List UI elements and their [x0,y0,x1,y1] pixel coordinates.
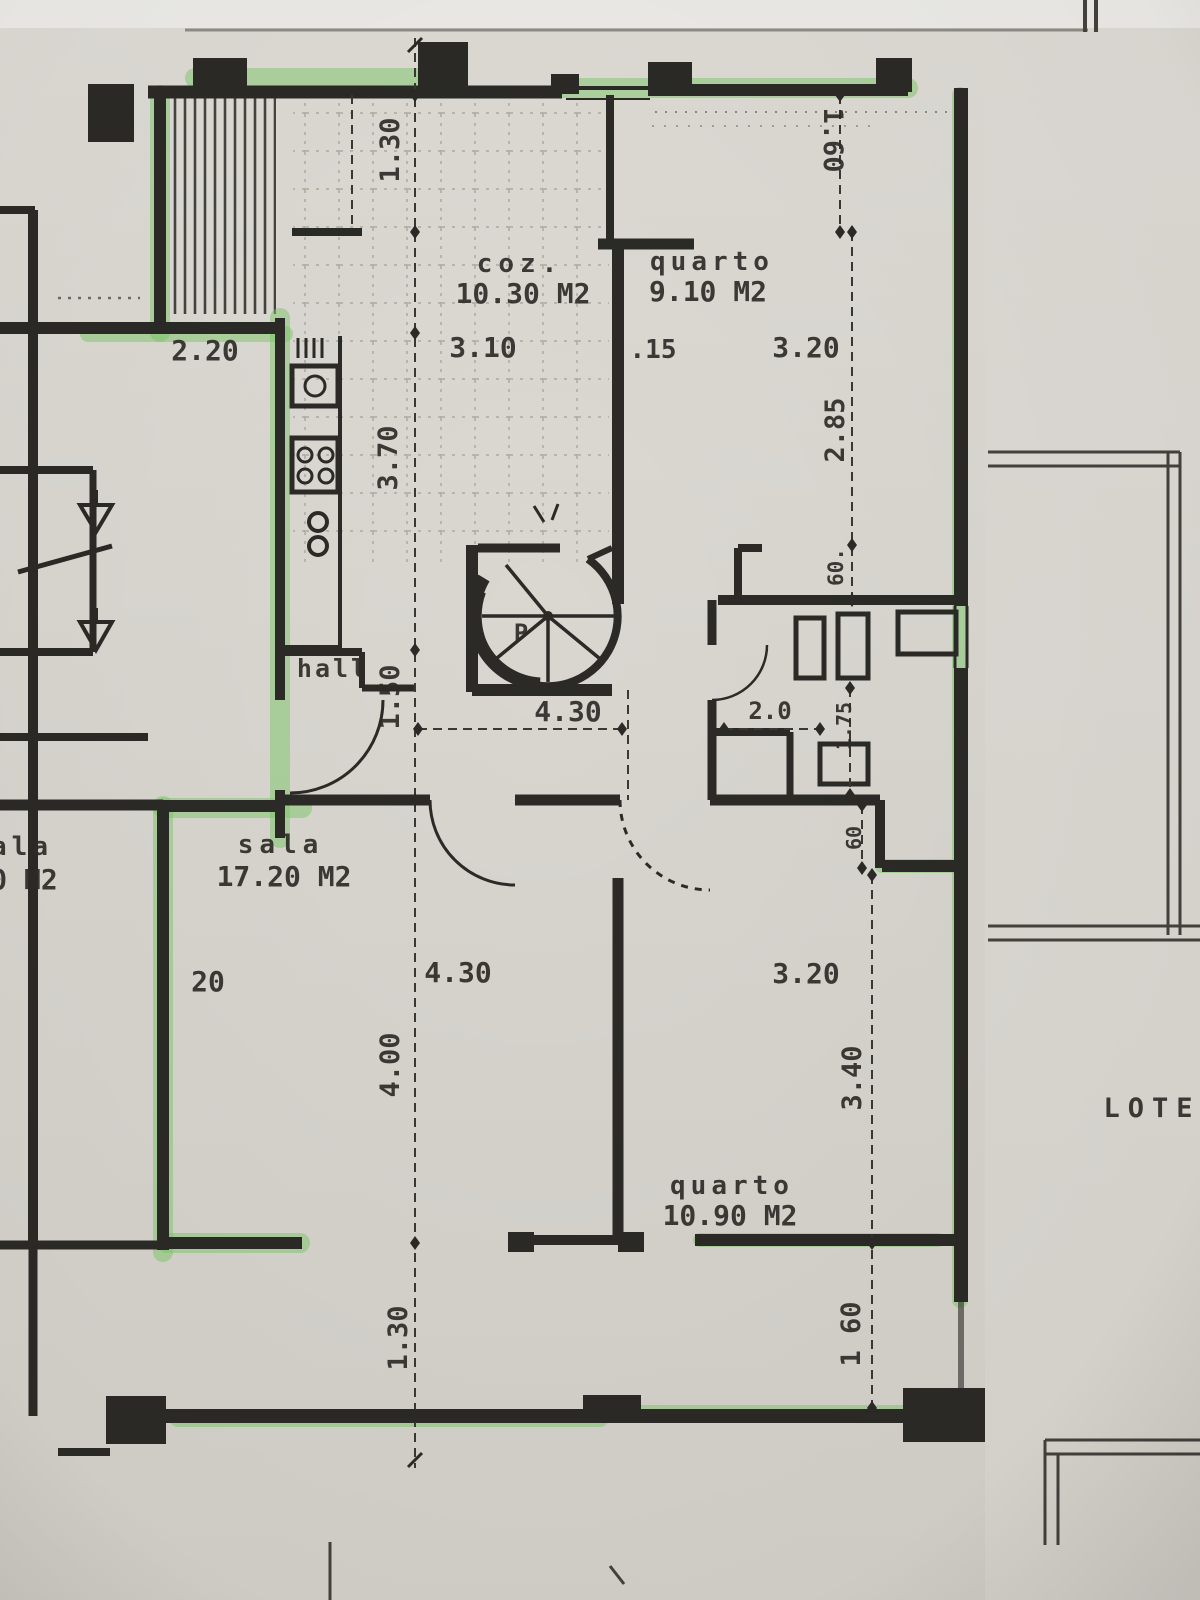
room-label-quarto-top: quarto [650,247,774,277]
lot-label: LOTE [1103,1093,1200,1124]
dim-wall-15: .15 [630,335,677,365]
dim-height-3-70: 3.70 [373,425,404,490]
dim-width-3-20-bottom: 3.20 [772,957,839,990]
room-area-quarto-top: 9.10 M2 [649,275,767,308]
room-label-hall: hall [297,654,369,683]
dim-height-4-00: 4.00 [375,1032,406,1097]
room-label-quarto-bottom: quarto [670,1171,794,1201]
dim-height-1-50: 1.50 [375,664,406,729]
room-label-cozinha: coz. [477,249,564,279]
stair-label-p: P [514,619,528,647]
room-area-sala: 17.20 M2 [217,860,352,893]
room-area-cozinha: 10.30 M2 [456,277,591,310]
room-area-sala-partial: 0 M2 [0,863,58,896]
dim-width-3-10: 3.10 [449,331,516,364]
room-label-sala: sala [238,830,325,860]
room-label-sala-partial: ala [0,832,53,862]
dim-height-1-30-bottom: 1.30 [383,1305,414,1370]
floorplan-photo: coz.10.30 M2quarto9.10 M2hallsala17.20 M… [0,0,1200,1600]
photo-vignette [0,0,1200,1600]
dim-height-3-40: 3.40 [837,1045,868,1110]
dim-width-2-20: 2.20 [171,334,238,367]
dim-width-3-20-top: 3.20 [772,331,839,364]
dim-height-1-60-bottom: 1 60 [836,1301,867,1366]
dim-height-1-60-top: 1.60 [817,107,848,172]
dim-height-1-75: 1.75 [832,702,856,750]
room-area-quarto-bottom: 10.90 M2 [663,1199,798,1232]
dim-width-20: 20 [191,965,225,998]
dim-width-2-0: 2.0 [748,697,791,725]
dim-width-4-30-mid: 4.30 [534,695,601,728]
dim-width-4-30-sala: 4.30 [424,956,491,989]
dim-height-2-85: 2.85 [820,397,851,462]
floorplan-drawing: coz.10.30 M2quarto9.10 M2hallsala17.20 M… [0,0,1200,1600]
dim-height-1-30-top: 1.30 [375,117,406,182]
dim-height-60-right: 60 [842,826,866,850]
dim-height-60-bath: 60. [824,548,848,586]
